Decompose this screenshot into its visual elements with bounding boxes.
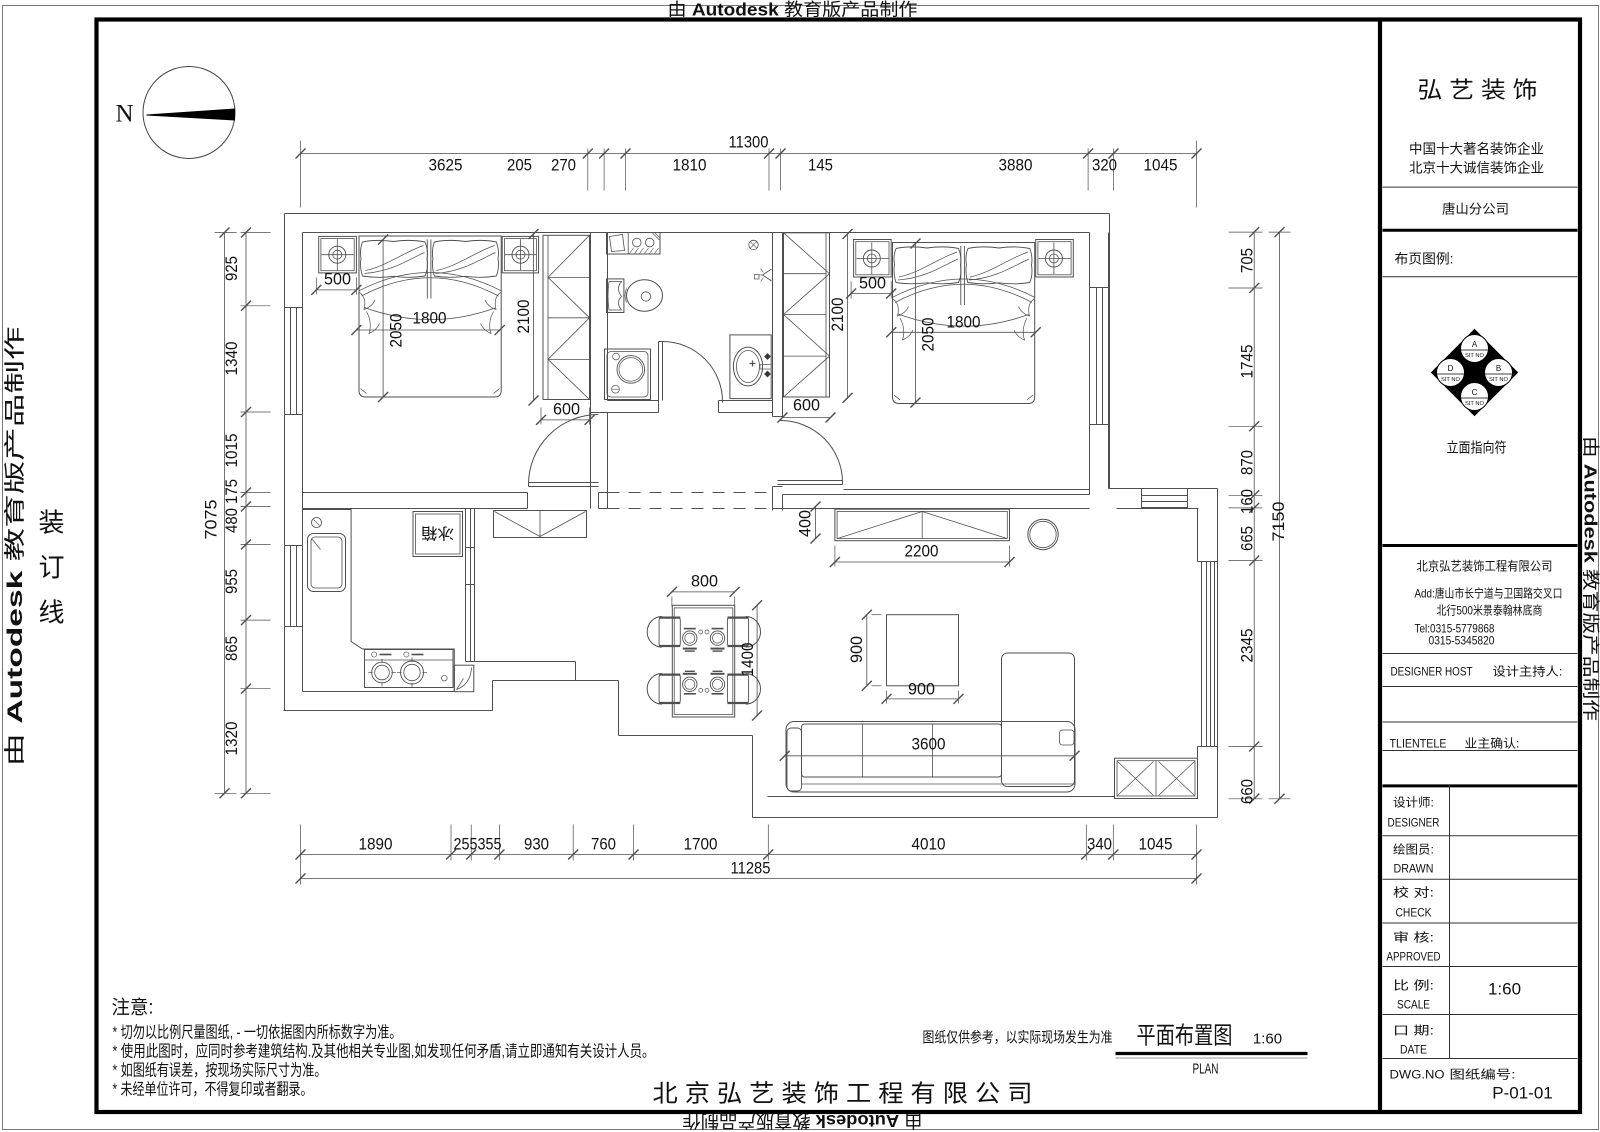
svg-text:1810: 1810: [673, 156, 707, 175]
svg-text:TLIENTELE: TLIENTELE: [1390, 739, 1447, 751]
svg-text:布页图例:: 布页图例:: [1395, 252, 1454, 267]
svg-text:弘 艺 装 饰: 弘 艺 装 饰: [1418, 77, 1538, 103]
svg-text:340: 340: [1087, 835, 1112, 854]
svg-text:900: 900: [847, 636, 866, 663]
svg-text:SIT NO: SIT NO: [1489, 377, 1509, 383]
svg-text:145: 145: [808, 156, 833, 175]
svg-text:1400: 1400: [738, 643, 757, 677]
svg-text:660: 660: [1238, 779, 1257, 804]
svg-text:C: C: [1472, 388, 1478, 397]
svg-text:北京弘艺装饰工程有限公司: 北京弘艺装饰工程有限公司: [1417, 559, 1553, 574]
svg-text:600: 600: [553, 400, 580, 419]
svg-text:930: 930: [524, 835, 549, 854]
svg-text:订: 订: [38, 553, 64, 583]
svg-text:925: 925: [222, 256, 241, 281]
svg-text:2100: 2100: [828, 298, 847, 332]
svg-text:D: D: [1448, 364, 1454, 373]
svg-text:审 核:: 审 核:: [1393, 930, 1434, 945]
svg-text:注意:: 注意:: [112, 997, 154, 1019]
svg-text:3600: 3600: [912, 735, 946, 754]
svg-text:DATE: DATE: [1400, 1045, 1427, 1057]
svg-text:500: 500: [859, 274, 886, 293]
svg-text:865: 865: [222, 636, 241, 661]
svg-text:由 Autodesk 教育版产品制作: 由 Autodesk 教育版产品制作: [668, 0, 918, 20]
svg-text:11285: 11285: [731, 859, 771, 878]
svg-text:2200: 2200: [905, 542, 939, 561]
svg-text:7150: 7150: [1269, 502, 1288, 542]
svg-text:1045: 1045: [1144, 156, 1178, 175]
svg-text:设计主持人:: 设计主持人:: [1493, 664, 1563, 679]
svg-text:1:60: 1:60: [1253, 1031, 1282, 1048]
svg-text:665: 665: [1238, 526, 1257, 551]
svg-text:11300: 11300: [729, 133, 769, 152]
svg-text:2100: 2100: [514, 300, 533, 334]
svg-text:800: 800: [691, 572, 718, 591]
svg-text:设计师:: 设计师:: [1393, 796, 1434, 810]
svg-text:1800: 1800: [413, 309, 447, 328]
svg-text:500: 500: [324, 270, 351, 289]
svg-text:SIT NO: SIT NO: [1441, 377, 1461, 383]
svg-text:1340: 1340: [222, 342, 241, 376]
svg-text:900: 900: [908, 680, 935, 699]
svg-text:北 京 弘 艺 装 饰 工 程 有 限 公 司: 北 京 弘 艺 装 饰 工 程 有 限 公 司: [653, 1081, 1033, 1108]
svg-text:CHECK: CHECK: [1396, 908, 1432, 920]
svg-text:1:60: 1:60: [1488, 980, 1521, 999]
svg-text:1745: 1745: [1238, 345, 1257, 379]
svg-text:DWG.NO: DWG.NO: [1390, 1070, 1445, 1082]
svg-text:1700: 1700: [684, 835, 718, 854]
svg-text:中国十大著名装饰企业: 中国十大著名装饰企业: [1409, 141, 1544, 157]
svg-text:205: 205: [507, 156, 532, 175]
svg-text:图纸仅供参考，以实际现场发生为准: 图纸仅供参考，以实际现场发生为准: [923, 1030, 1113, 1047]
svg-text:705: 705: [1238, 248, 1257, 273]
svg-text:PLAN: PLAN: [1193, 1061, 1219, 1078]
svg-text:P-01-01: P-01-01: [1492, 1084, 1552, 1103]
svg-text:N: N: [115, 101, 133, 128]
svg-text:270: 270: [551, 156, 576, 175]
svg-text:北京十大诚信装饰企业: 北京十大诚信装饰企业: [1409, 160, 1544, 176]
svg-text:160: 160: [1238, 489, 1257, 514]
svg-text:由 Autodesk 教育版产品制作: 由 Autodesk 教育版产品制作: [683, 1111, 923, 1131]
svg-text:装: 装: [38, 508, 64, 538]
svg-text:SCALE: SCALE: [1397, 1000, 1430, 1012]
svg-text:1800: 1800: [947, 313, 981, 332]
svg-text:由 Autodesk 教育版产品制作: 由 Autodesk 教育版产品制作: [4, 327, 27, 767]
svg-text:唐山分公司: 唐山分公司: [1442, 202, 1509, 217]
svg-text:校 对:: 校 对:: [1393, 885, 1434, 900]
svg-text:Add:唐山市长宁道与卫国路交叉口: Add:唐山市长宁道与卫国路交叉口: [1415, 586, 1563, 601]
svg-text:3880: 3880: [999, 156, 1033, 175]
svg-text:760: 760: [591, 835, 616, 854]
svg-text:口 期:: 口 期:: [1393, 1024, 1434, 1038]
svg-text:4010: 4010: [912, 835, 946, 854]
svg-text:320: 320: [1092, 156, 1117, 175]
svg-text:绘图员:: 绘图员:: [1393, 842, 1434, 857]
svg-text:480: 480: [222, 508, 241, 533]
svg-text:0315-5345820: 0315-5345820: [1429, 634, 1495, 648]
svg-text:A: A: [1472, 340, 1478, 349]
svg-text:2050: 2050: [387, 314, 406, 348]
svg-text:APPROVED: APPROVED: [1387, 952, 1441, 964]
svg-text:SIT NO: SIT NO: [1465, 401, 1485, 407]
svg-text:业主确认:: 业主确认:: [1465, 737, 1520, 751]
svg-text:355: 355: [478, 835, 502, 854]
svg-text:DESIGNER: DESIGNER: [1388, 818, 1440, 830]
svg-text:图纸编号:: 图纸编号:: [1450, 1067, 1516, 1082]
svg-text:7075: 7075: [202, 500, 221, 540]
svg-text:1045: 1045: [1139, 835, 1173, 854]
svg-text:600: 600: [793, 396, 820, 415]
svg-text:955: 955: [222, 569, 241, 594]
svg-text:3625: 3625: [429, 156, 463, 175]
svg-text:1320: 1320: [222, 722, 241, 756]
svg-text:DESIGNER HOST: DESIGNER HOST: [1391, 667, 1473, 679]
svg-text:北行500米景泰翰林底商: 北行500米景泰翰林底商: [1437, 603, 1543, 618]
svg-text:立面指向符: 立面指向符: [1447, 440, 1507, 456]
svg-text:平面布置图: 平面布置图: [1137, 1023, 1233, 1050]
svg-text:B: B: [1496, 364, 1501, 373]
svg-text:* 未经单位许可，不得复印或者翻录。: * 未经单位许可，不得复印或者翻录。: [113, 1081, 313, 1099]
svg-text:1015: 1015: [222, 434, 241, 468]
svg-text:* 如图纸有误差，按现场实际尺寸为准。: * 如图纸有误差，按现场实际尺寸为准。: [113, 1062, 327, 1080]
svg-text:870: 870: [1238, 450, 1257, 475]
svg-text:线: 线: [38, 598, 64, 628]
svg-text:2345: 2345: [1238, 629, 1257, 663]
svg-text:* 使用此图时，应同时参考建筑结构.及其他相关专业图,如发: * 使用此图时，应同时参考建筑结构.及其他相关专业图,如发现任何矛盾,请立即通知…: [113, 1042, 655, 1061]
svg-text:比 例:: 比 例:: [1393, 979, 1434, 993]
svg-text:255: 255: [454, 835, 478, 854]
svg-text:* 切勿以比例尺量图纸, - 一切依据图内所标数字为准。: * 切勿以比例尺量图纸, - 一切依据图内所标数字为准。: [113, 1024, 402, 1042]
svg-text:400: 400: [796, 510, 815, 537]
svg-text:SIT NO: SIT NO: [1465, 353, 1485, 359]
svg-text:由 Autodesk 教育版产品制作: 由 Autodesk 教育版产品制作: [1581, 436, 1600, 721]
svg-text:2050: 2050: [919, 318, 938, 352]
svg-text:DRAWN: DRAWN: [1394, 864, 1434, 876]
svg-text:1890: 1890: [359, 835, 393, 854]
svg-text:冰箱: 冰箱: [421, 524, 454, 542]
svg-text:175: 175: [222, 479, 241, 504]
